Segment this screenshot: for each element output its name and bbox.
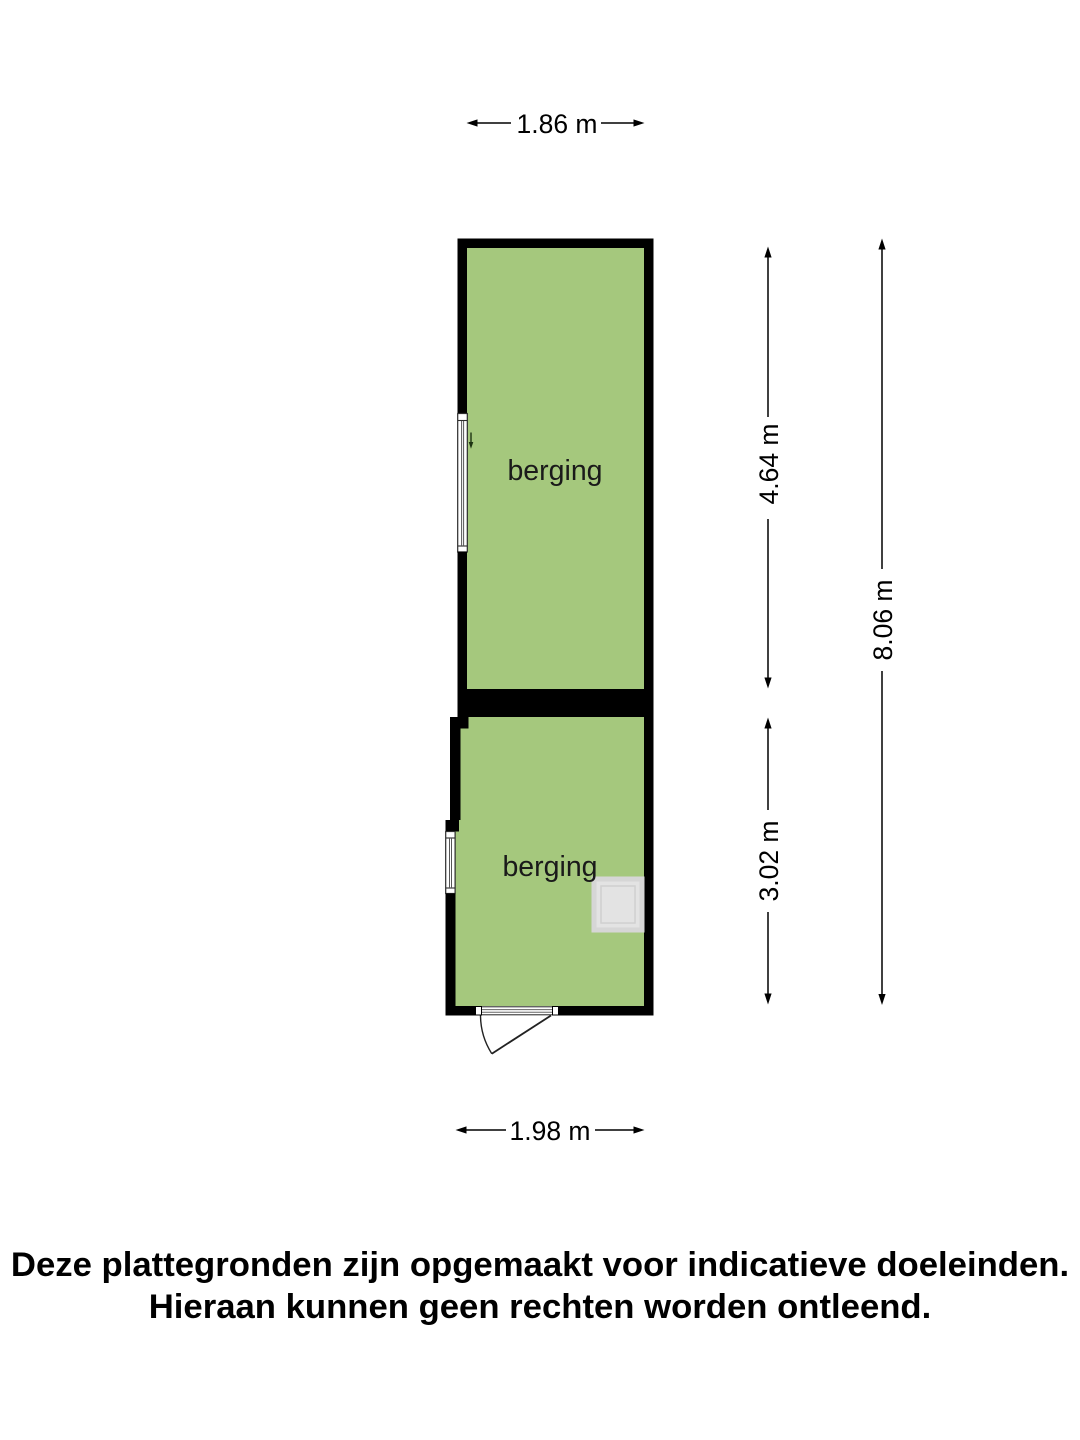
svg-text:Deze plattegronden zijn opgema: Deze plattegronden zijn opgemaakt voor i… [11, 1246, 1069, 1284]
svg-text:3.02 m: 3.02 m [754, 820, 784, 901]
svg-text:berging: berging [507, 455, 602, 487]
svg-text:8.06 m: 8.06 m [868, 579, 898, 660]
svg-text:4.64 m: 4.64 m [754, 423, 784, 504]
svg-text:berging: berging [502, 851, 597, 883]
svg-text:1.98 m: 1.98 m [509, 1116, 590, 1146]
svg-text:Hieraan kunnen geen rechten wo: Hieraan kunnen geen rechten worden ontle… [149, 1288, 932, 1326]
svg-text:1.86 m: 1.86 m [516, 109, 597, 139]
